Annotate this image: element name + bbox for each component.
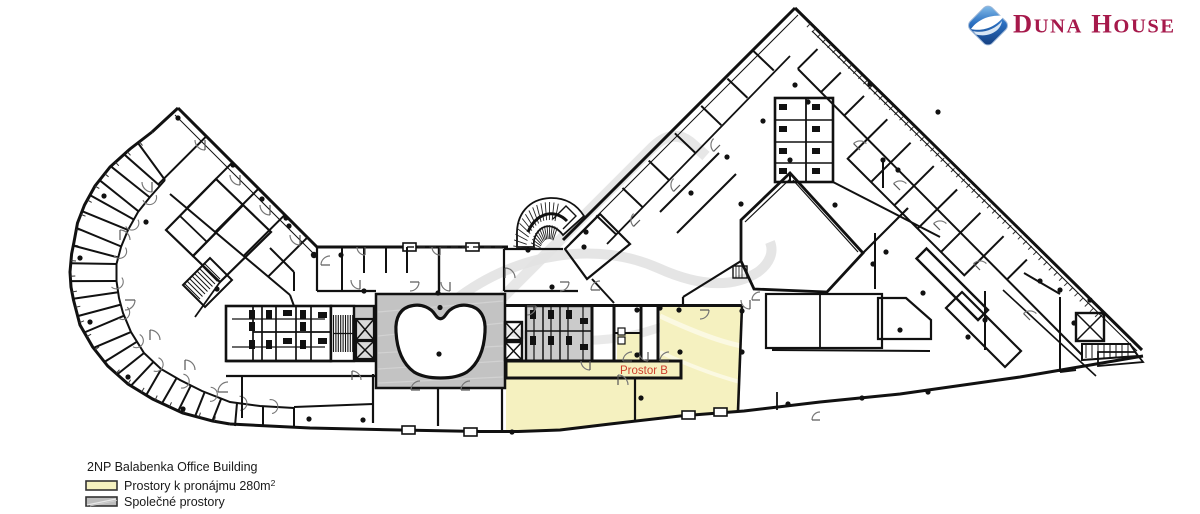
svg-text:Prostory k pronájmu 280m2: Prostory k pronájmu 280m2 bbox=[124, 478, 276, 493]
svg-text:2NP Balabenka Office Building: 2NP Balabenka Office Building bbox=[87, 460, 258, 474]
svg-text:Společné prostory: Společné prostory bbox=[124, 495, 226, 509]
svg-text:Prostor B: Prostor B bbox=[620, 365, 668, 377]
